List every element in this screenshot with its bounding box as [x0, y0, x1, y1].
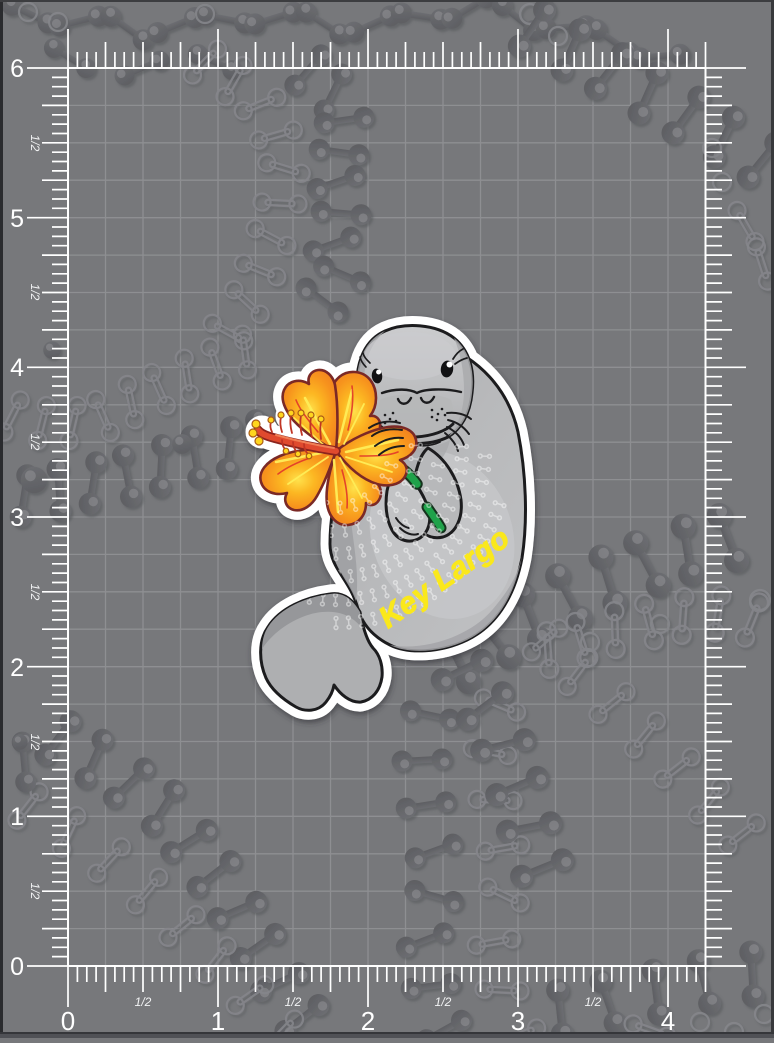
svg-text:1/2: 1/2: [28, 734, 42, 751]
svg-text:3: 3: [511, 1006, 525, 1036]
svg-text:0: 0: [61, 1006, 75, 1036]
svg-text:4: 4: [10, 354, 24, 382]
svg-text:5: 5: [10, 205, 24, 233]
svg-text:1/2: 1/2: [28, 584, 42, 601]
svg-text:1/2: 1/2: [28, 135, 42, 152]
svg-text:1: 1: [10, 803, 24, 831]
svg-text:6: 6: [10, 55, 24, 83]
svg-text:1/2: 1/2: [135, 995, 152, 1009]
svg-text:4: 4: [661, 1006, 675, 1036]
svg-text:1/2: 1/2: [28, 284, 42, 301]
svg-text:1/2: 1/2: [285, 995, 302, 1009]
svg-text:0: 0: [10, 953, 24, 981]
svg-text:2: 2: [361, 1006, 375, 1036]
svg-text:1/2: 1/2: [585, 995, 602, 1009]
svg-text:2: 2: [10, 654, 24, 682]
svg-text:3: 3: [10, 504, 24, 532]
svg-text:1/2: 1/2: [28, 434, 42, 451]
svg-text:1: 1: [211, 1006, 225, 1036]
svg-text:1/2: 1/2: [435, 995, 452, 1009]
svg-text:1/2: 1/2: [28, 883, 42, 900]
